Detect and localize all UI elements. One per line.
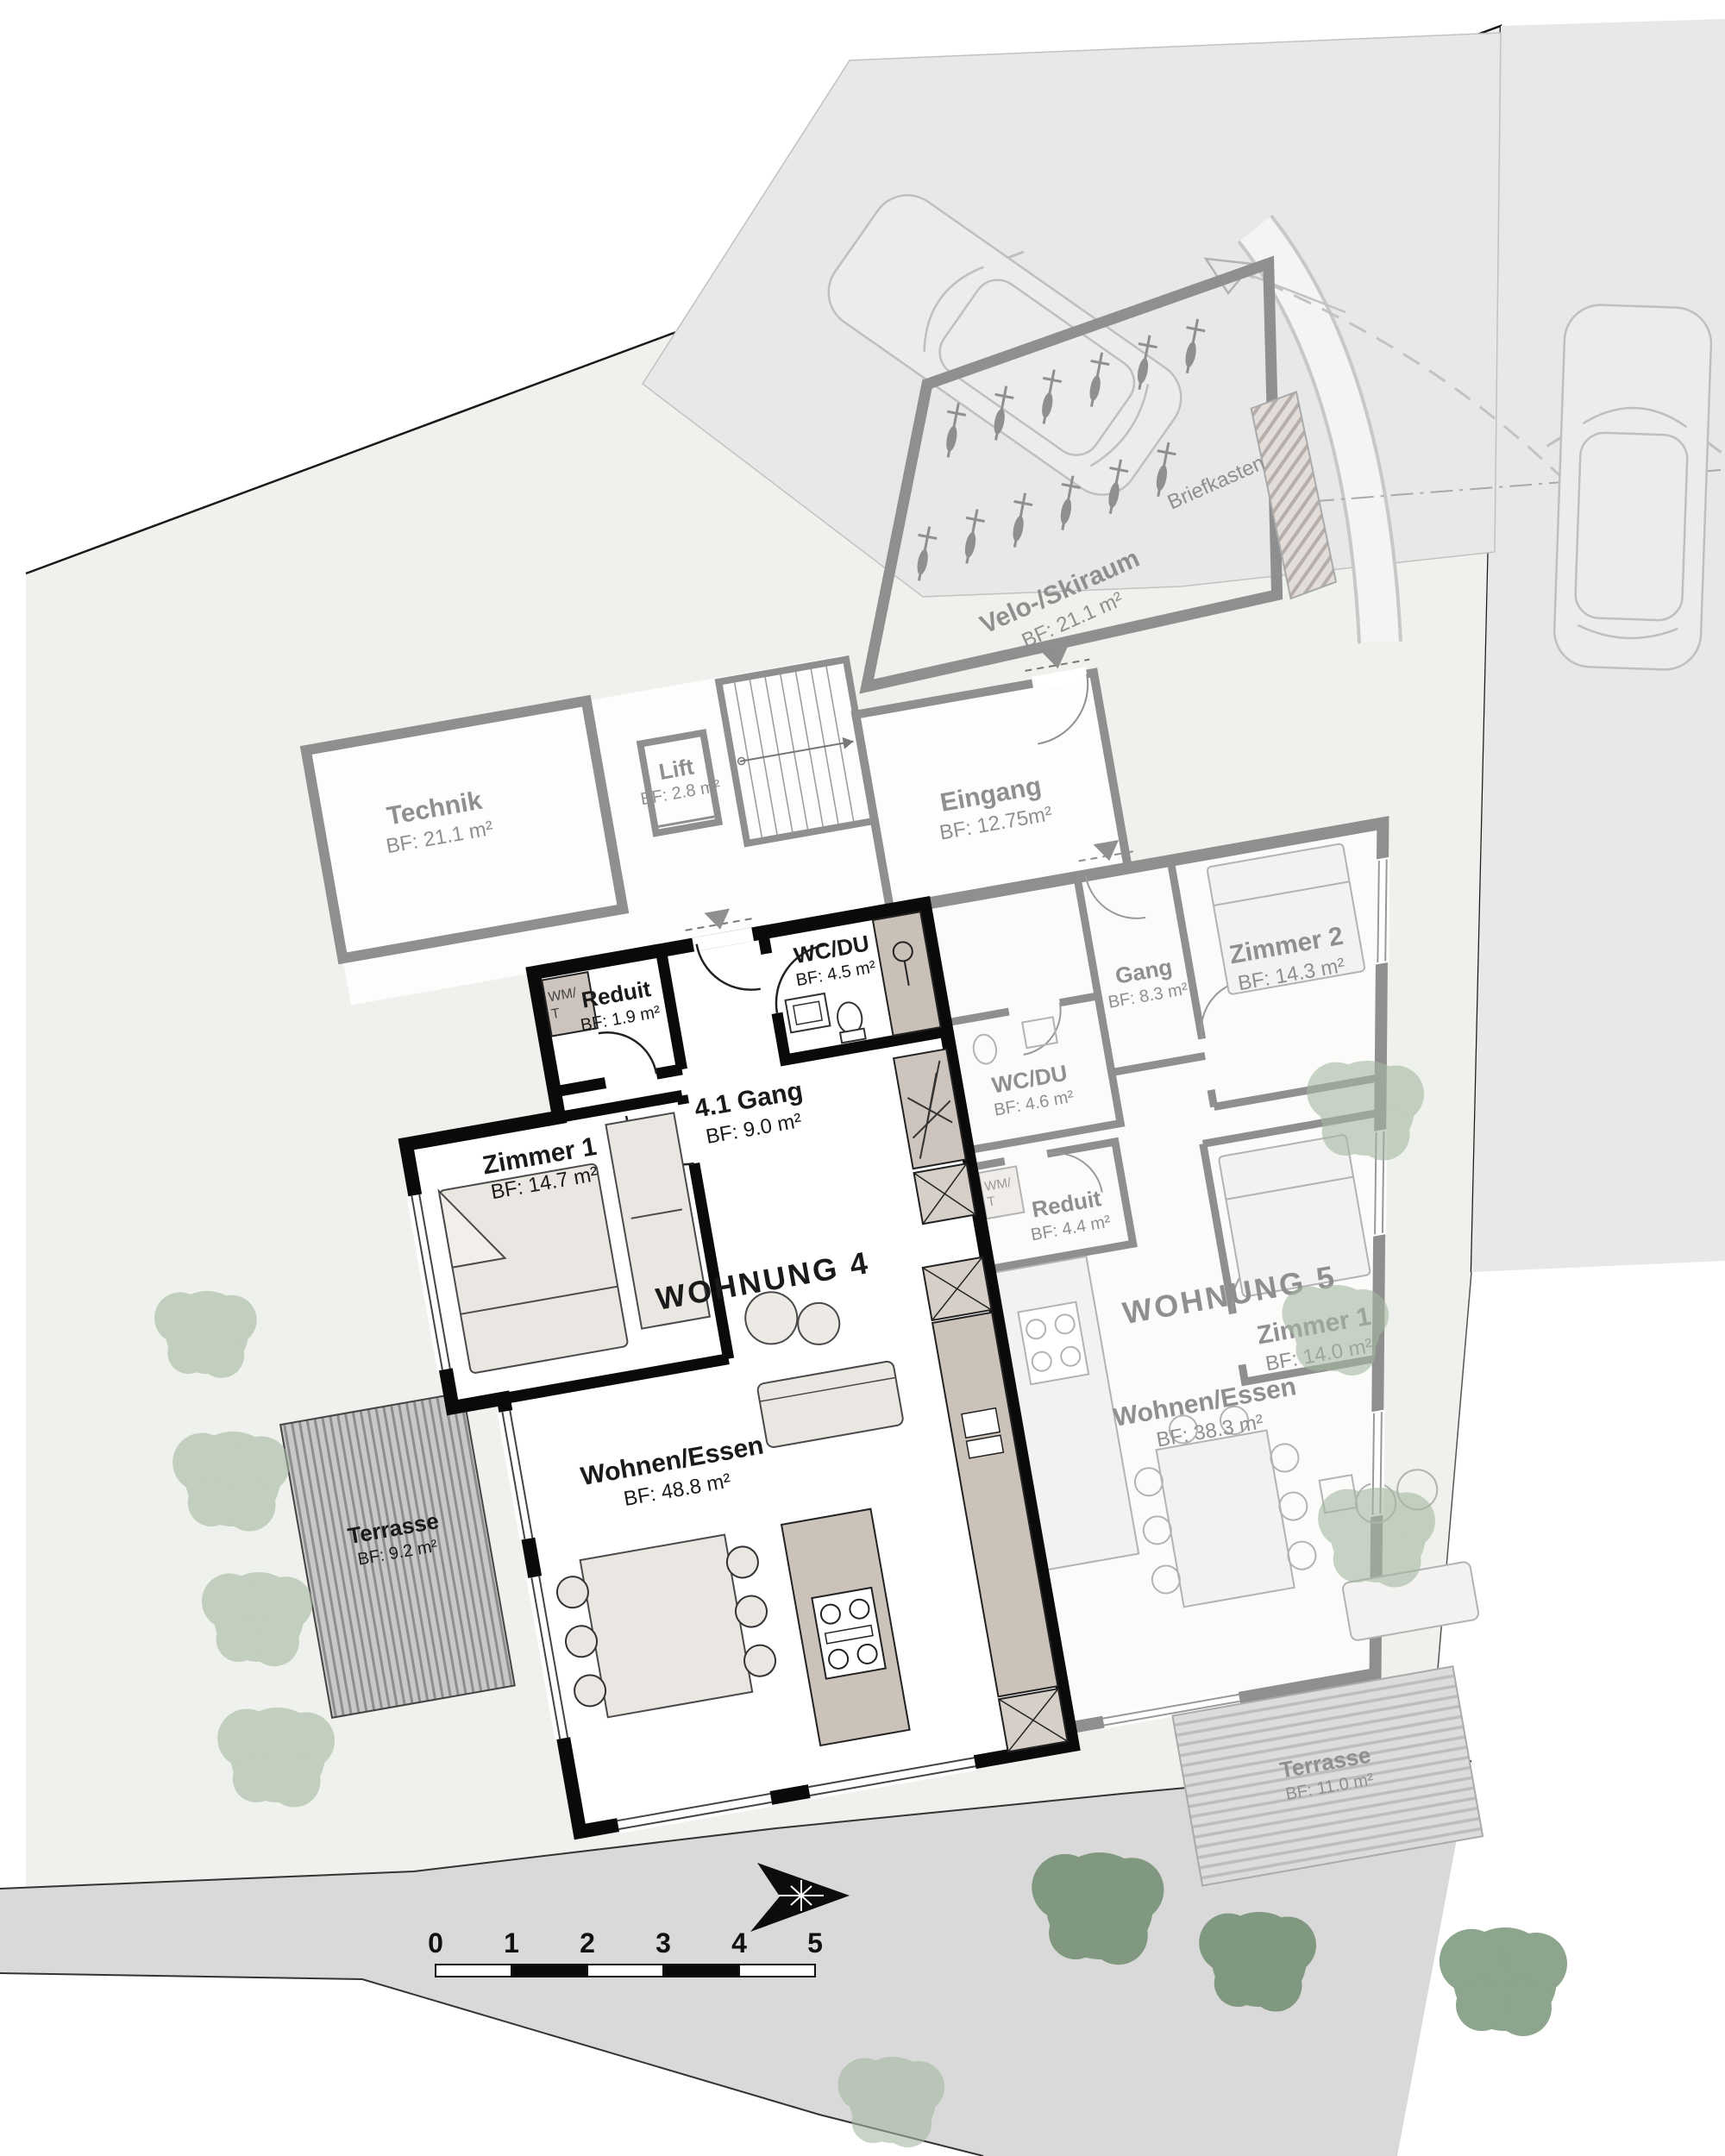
scale-3: 3 [655, 1927, 671, 1959]
scale-2: 2 [580, 1927, 595, 1959]
scale-4: 4 [731, 1927, 747, 1959]
w4-hob [812, 1588, 885, 1679]
floorplan-drawing: Velo-/Skiraum BF: 21.1 m² Briefkasten Te… [0, 0, 1725, 2156]
scale-0: 0 [428, 1927, 443, 1959]
w4-kitchen-sink [962, 1408, 1000, 1438]
w4-sink-fixture [786, 993, 831, 1032]
scale-1: 1 [504, 1927, 519, 1959]
floorplan-page: Velo-/Skiraum BF: 21.1 m² Briefkasten Te… [0, 0, 1725, 2156]
car-street [1540, 304, 1725, 672]
scale-5: 5 [807, 1927, 823, 1959]
